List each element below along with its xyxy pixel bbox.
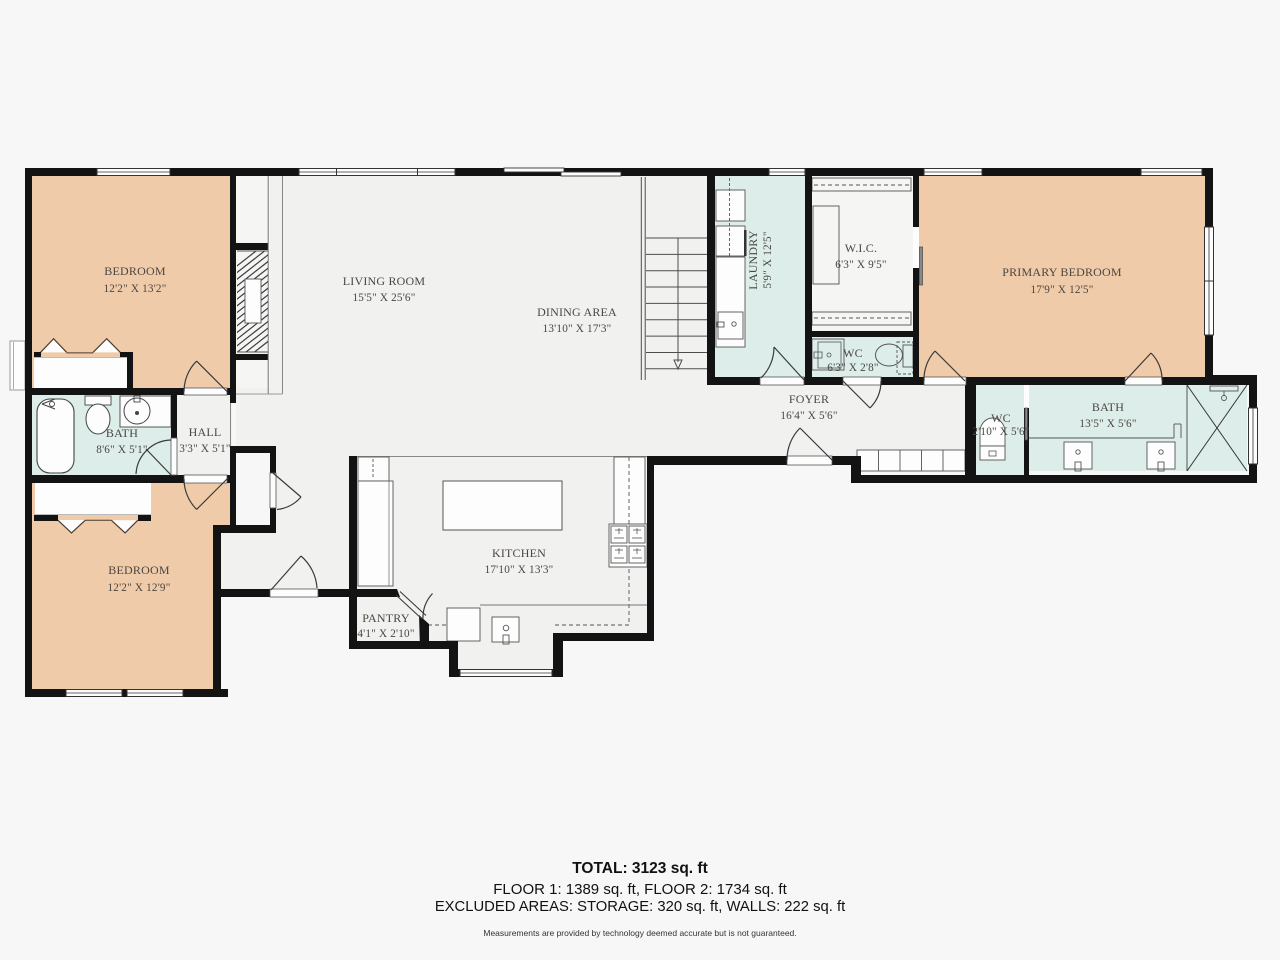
svg-text:13'5" X 5'6": 13'5" X 5'6" [1079, 418, 1136, 430]
svg-text:17'9" X 12'5": 17'9" X 12'5" [1030, 284, 1093, 296]
svg-text:2'10" X 5'6": 2'10" X 5'6" [972, 426, 1029, 438]
svg-text:WC: WC [991, 411, 1011, 425]
svg-text:W.I.C.: W.I.C. [845, 241, 877, 255]
svg-text:5'9" X 12'5": 5'9" X 12'5" [762, 231, 774, 288]
svg-text:6'3" X 2'8": 6'3" X 2'8" [827, 362, 878, 374]
svg-text:17'10" X 13'3": 17'10" X 13'3" [485, 564, 554, 576]
svg-text:FOYER: FOYER [789, 392, 829, 406]
svg-text:BEDROOM: BEDROOM [104, 264, 166, 278]
svg-text:BATH: BATH [106, 426, 138, 440]
svg-text:LAUNDRY: LAUNDRY [746, 230, 760, 290]
svg-text:15'5" X 25'6": 15'5" X 25'6" [352, 292, 415, 304]
svg-text:13'10" X 17'3": 13'10" X 17'3" [543, 323, 612, 335]
svg-text:PRIMARY BEDROOM: PRIMARY BEDROOM [1002, 265, 1122, 279]
svg-text:LIVING ROOM: LIVING ROOM [343, 274, 426, 288]
svg-text:12'2" X 13'2": 12'2" X 13'2" [103, 283, 166, 295]
svg-text:HALL: HALL [189, 425, 222, 439]
svg-text:16'4" X 5'6": 16'4" X 5'6" [780, 410, 837, 422]
svg-text:WC: WC [843, 346, 863, 360]
svg-text:PANTRY: PANTRY [362, 611, 410, 625]
svg-text:BEDROOM: BEDROOM [108, 563, 170, 577]
svg-text:DINING AREA: DINING AREA [537, 305, 617, 319]
svg-text:4'1" X 2'10": 4'1" X 2'10" [357, 628, 414, 640]
svg-text:3'3" X 5'1": 3'3" X 5'1" [179, 443, 230, 455]
svg-text:12'2" X 12'9": 12'2" X 12'9" [107, 582, 170, 594]
svg-text:6'3" X 9'5": 6'3" X 9'5" [835, 259, 886, 271]
svg-text:KITCHEN: KITCHEN [492, 546, 546, 560]
svg-text:BATH: BATH [1092, 400, 1124, 414]
svg-text:8'6" X 5'1": 8'6" X 5'1" [96, 444, 147, 456]
